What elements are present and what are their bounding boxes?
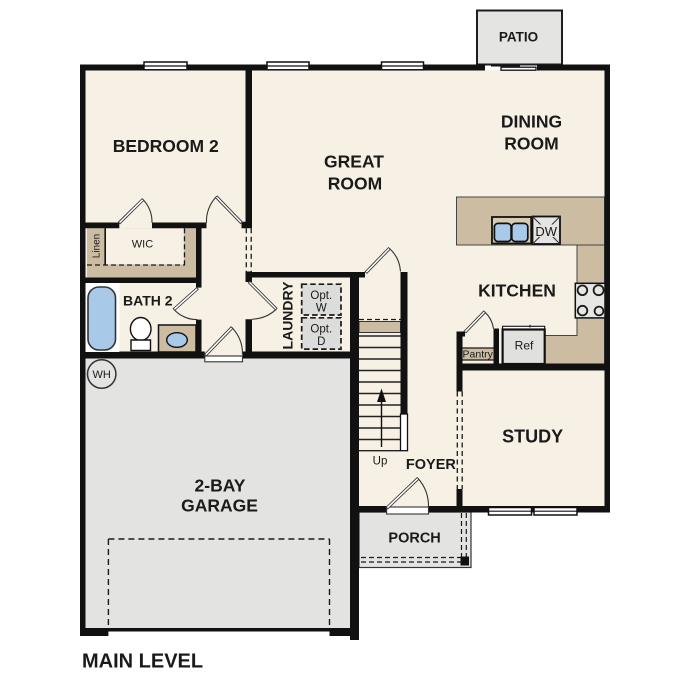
svg-text:LAUNDRY: LAUNDRY bbox=[280, 281, 296, 350]
svg-text:GREAT: GREAT bbox=[324, 152, 384, 172]
svg-text:Opt.: Opt. bbox=[310, 290, 332, 302]
svg-text:Up: Up bbox=[373, 456, 388, 468]
svg-text:WIC: WIC bbox=[132, 239, 153, 251]
svg-text:Linen: Linen bbox=[92, 234, 103, 258]
svg-text:Ref: Ref bbox=[515, 338, 534, 352]
svg-text:D: D bbox=[317, 336, 325, 348]
svg-text:ROOM: ROOM bbox=[504, 134, 558, 154]
svg-text:MAIN LEVEL: MAIN LEVEL bbox=[82, 650, 203, 672]
svg-text:STUDY: STUDY bbox=[502, 426, 563, 446]
svg-text:2-BAY: 2-BAY bbox=[195, 476, 246, 496]
svg-text:GARAGE: GARAGE bbox=[181, 496, 258, 516]
svg-text:ROOM: ROOM bbox=[328, 174, 382, 194]
svg-text:DW: DW bbox=[535, 224, 557, 239]
svg-text:W: W bbox=[316, 303, 327, 315]
svg-text:Pantry: Pantry bbox=[463, 349, 494, 361]
svg-text:DINING: DINING bbox=[501, 112, 562, 132]
svg-text:Opt.: Opt. bbox=[310, 324, 332, 336]
svg-text:WH: WH bbox=[93, 369, 111, 381]
svg-text:KITCHEN: KITCHEN bbox=[478, 281, 556, 301]
svg-text:BATH 2: BATH 2 bbox=[123, 293, 173, 309]
svg-text:PORCH: PORCH bbox=[388, 531, 440, 547]
svg-text:FOYER: FOYER bbox=[406, 457, 456, 473]
svg-text:PATIO: PATIO bbox=[499, 30, 538, 45]
svg-text:BEDROOM 2: BEDROOM 2 bbox=[113, 136, 219, 156]
